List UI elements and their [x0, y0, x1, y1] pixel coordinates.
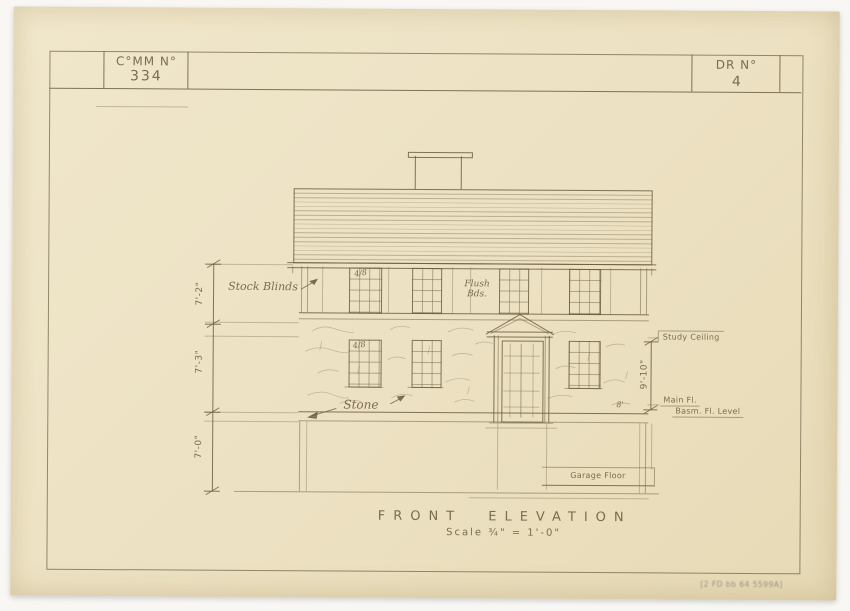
flush-boards-note: Flush Bds.	[452, 279, 502, 299]
study-ceiling-label: Study Ceiling	[658, 330, 724, 342]
pediment	[486, 314, 554, 334]
window-mark: 4/8	[354, 268, 368, 279]
scale-note: Scale ¾" = 1'-0"	[394, 527, 614, 539]
comm-no-label: C°MM N°	[105, 54, 187, 69]
comm-no-value: 334	[105, 68, 187, 85]
drawing-sheet: C°MM N° 334 DR N° 4	[10, 6, 840, 600]
flush-boards-line1: Flush	[452, 279, 502, 289]
blinds-note: Stock Blinds	[228, 280, 298, 293]
page-title: FRONT ELEVATION	[374, 509, 636, 526]
basement-floor-label: Basm. Fl. Level	[672, 407, 743, 418]
dr-no-value: 4	[693, 74, 779, 91]
dimension-second-floor: 7'-2"	[194, 278, 206, 310]
dimension-slashes	[206, 260, 658, 498]
dimension-first-floor: 7'-3"	[194, 346, 206, 378]
stone-texture	[305, 326, 630, 406]
door-mark: 8'	[616, 400, 623, 409]
drawing-area: C°MM N° 334 DR N° 4	[0, 0, 850, 611]
dimension-ceiling: 9'-10"	[638, 358, 650, 390]
dr-no-label: DR N°	[693, 58, 779, 73]
window-mark: 4/8	[352, 340, 366, 351]
main-floor-label: Main Fl.	[660, 395, 699, 406]
flush-boards-line2: Bds.	[452, 289, 502, 299]
garage-floor-label: Garage Floor	[542, 471, 654, 481]
dimension-basement: 7'-0"	[193, 431, 205, 463]
catalog-stamp: [2 FD bb 64 5599A]	[700, 580, 820, 590]
stone-note: Stone	[343, 398, 378, 412]
